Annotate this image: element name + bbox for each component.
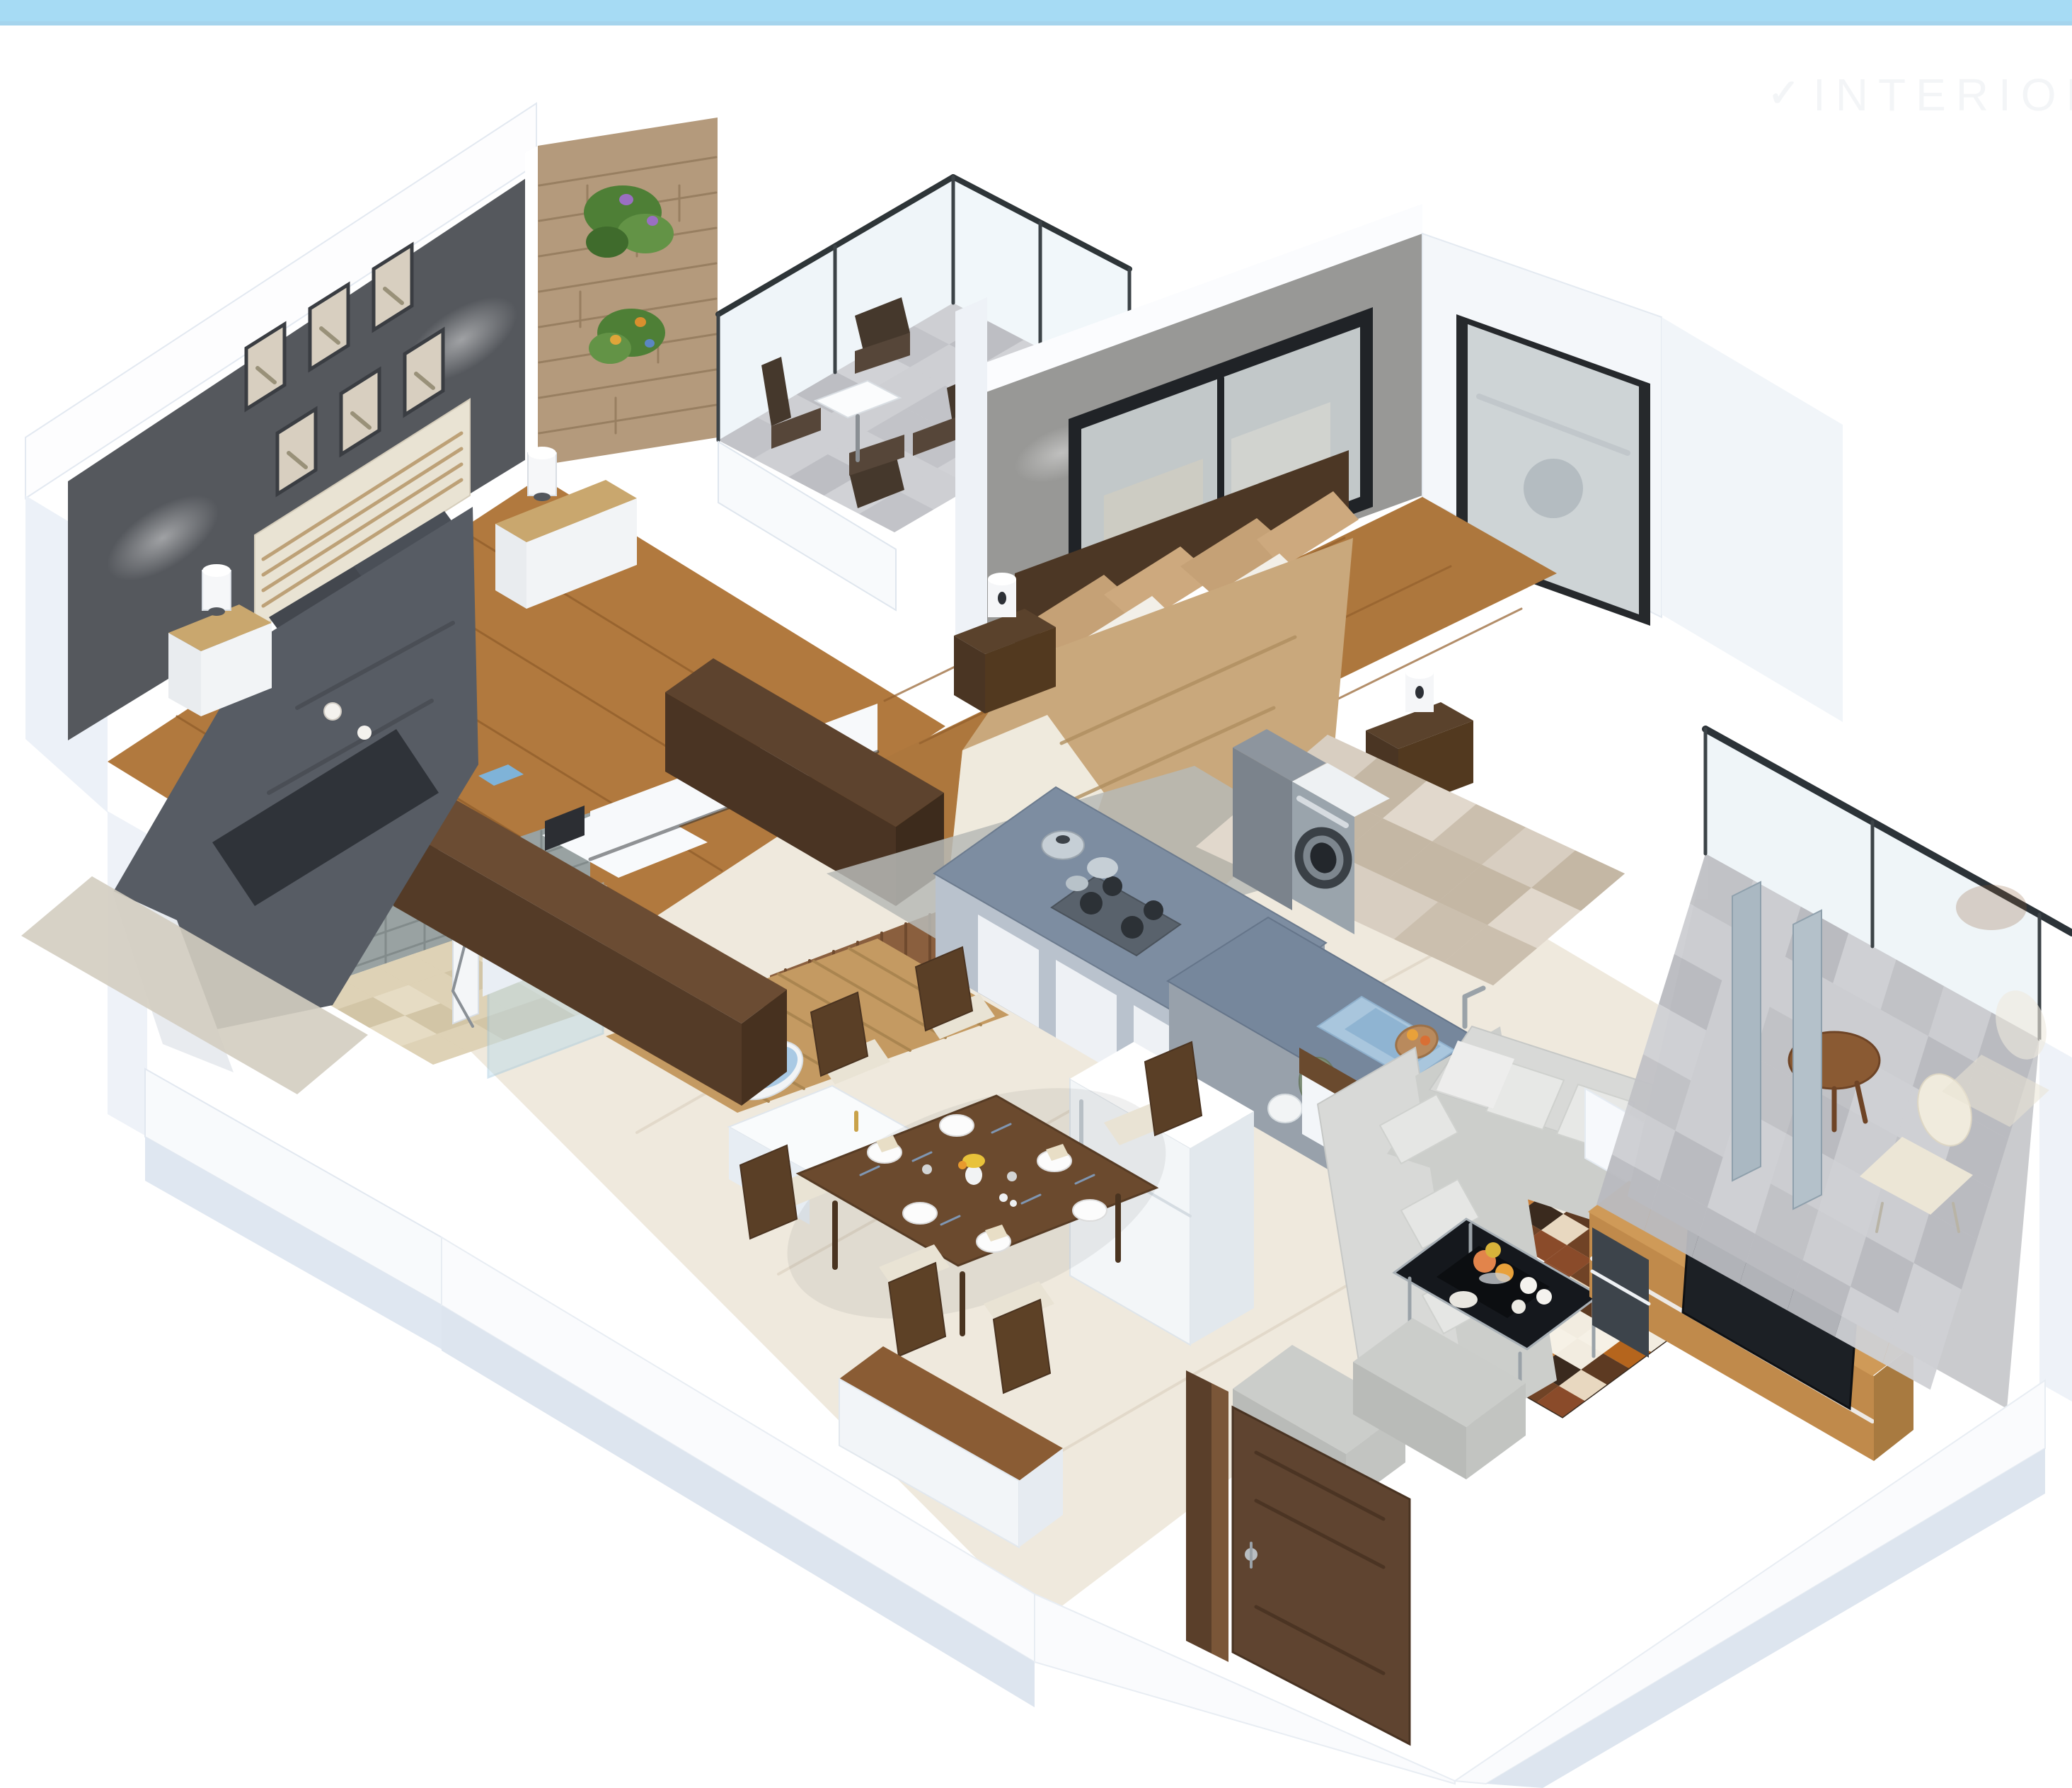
watermark-text: INTERIOR C xyxy=(1813,69,2072,120)
b2-lamp2-top xyxy=(1405,666,1434,679)
dinner-plate xyxy=(903,1203,937,1224)
drinking-glass xyxy=(922,1164,932,1174)
flower-vase xyxy=(965,1165,982,1185)
saucer xyxy=(1449,1291,1478,1308)
pepper-shaker xyxy=(1010,1200,1017,1207)
hob-burner xyxy=(1080,892,1103,915)
cooking-pot-lid xyxy=(1056,835,1070,844)
vertical-garden-plant xyxy=(586,227,628,258)
mb-lamp-base xyxy=(208,607,225,616)
mb-lamp2-base xyxy=(534,493,551,501)
bedroom2-side-wall xyxy=(955,297,987,680)
door-frame-inner xyxy=(1211,1383,1228,1662)
hob-burner xyxy=(1121,916,1144,939)
cooking-pot xyxy=(1087,857,1118,878)
top-bar xyxy=(0,0,2072,21)
b2-lamp2-core xyxy=(1415,686,1424,699)
decor-egg xyxy=(1520,1277,1537,1294)
b2-lamp-core xyxy=(998,592,1006,604)
floor-plan-render: ✓ INTERIOR C xyxy=(0,0,2072,1788)
dinner-plate xyxy=(1073,1200,1107,1221)
window-washer-ghost xyxy=(1524,459,1583,518)
floor-plan-page: ✓ INTERIOR C xyxy=(0,0,2072,1788)
top-bar-edge xyxy=(0,21,2072,25)
fridge-side xyxy=(1190,1111,1254,1345)
door-frame xyxy=(1186,1370,1211,1654)
fruit-lemon xyxy=(1485,1242,1501,1258)
stone-feature-wall xyxy=(538,118,718,466)
watermark-logo-mark: ✓ xyxy=(1768,72,1800,115)
fruit-bowl xyxy=(1479,1273,1510,1284)
sliding-door-frame xyxy=(1732,882,1761,1181)
cooking-pot xyxy=(1066,876,1088,891)
flowers-orange xyxy=(958,1161,967,1169)
mb-lamp2-top xyxy=(528,447,556,459)
basket-fruit xyxy=(1420,1036,1430,1045)
decor-egg xyxy=(1512,1300,1526,1314)
teapot xyxy=(1268,1094,1302,1123)
dinner-plate xyxy=(940,1115,974,1136)
mb-wall-strip xyxy=(525,146,538,467)
drinking-glass xyxy=(1007,1171,1017,1181)
garden-flower xyxy=(610,335,621,345)
garden-flower xyxy=(619,194,633,205)
hob-burner xyxy=(1103,876,1122,896)
garden-flower xyxy=(645,339,655,348)
basket-fruit xyxy=(1407,1029,1418,1041)
hob-burner xyxy=(1144,900,1163,920)
mb-cup xyxy=(324,703,341,720)
round-table-reflection xyxy=(1956,885,2027,930)
b2-lamp-top xyxy=(988,573,1016,585)
garden-flower xyxy=(635,317,646,327)
garden-flower xyxy=(647,216,658,226)
decor-egg xyxy=(1536,1289,1552,1305)
mb-lamp-top xyxy=(202,564,231,577)
mb-cup xyxy=(357,726,372,740)
vertical-garden-plant xyxy=(589,333,631,364)
salt-shaker xyxy=(999,1193,1008,1202)
sliding-door-frame xyxy=(1793,910,1821,1209)
